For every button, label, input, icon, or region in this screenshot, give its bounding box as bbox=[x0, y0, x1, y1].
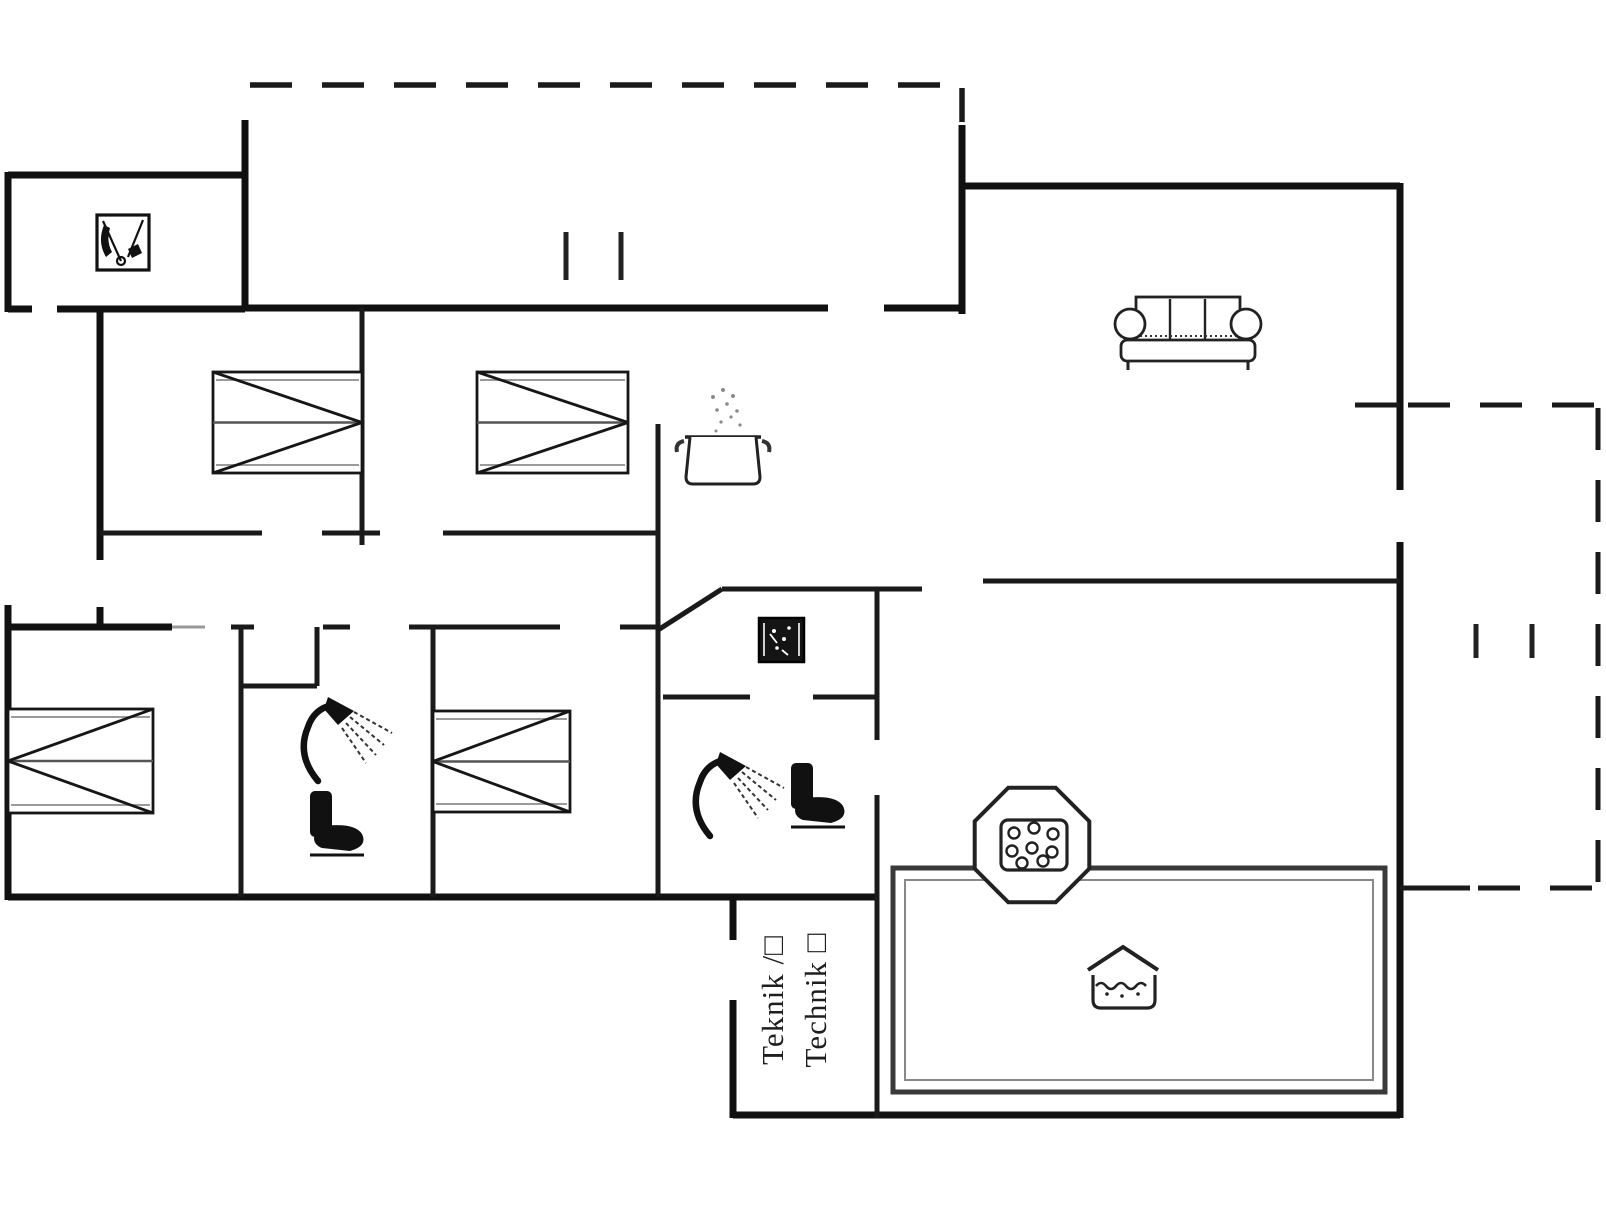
technical-room-label-de: Technik □ bbox=[798, 933, 833, 1068]
double-bed-icon bbox=[8, 709, 153, 813]
double-bed-icon bbox=[213, 372, 362, 473]
double-bed-icon bbox=[477, 372, 628, 473]
floor-plan-canvas: Teknik /□ Technik □ bbox=[0, 0, 1606, 1205]
double-bed-icon bbox=[433, 711, 570, 812]
technical-room-label-da: Teknik /□ bbox=[755, 935, 790, 1065]
floor-plan-svg: Teknik /□ Technik □ bbox=[0, 0, 1606, 1205]
wood-stove-icon bbox=[759, 618, 804, 662]
hot-tub-icon bbox=[975, 788, 1090, 903]
sofa-icon bbox=[1115, 297, 1261, 370]
washbasin-icon bbox=[97, 215, 149, 270]
